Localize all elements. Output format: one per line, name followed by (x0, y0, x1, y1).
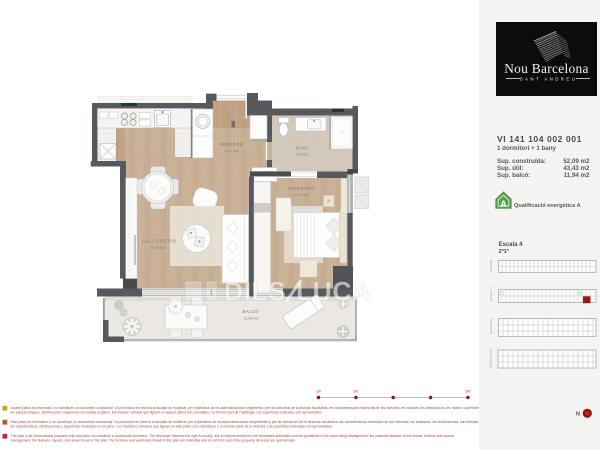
svg-text:las características, distribuc: las características, distribuciones y su… (11, 424, 333, 428)
svg-text:Aquest plànol és informatiu i: Aquest plànol és informatiu i no constit… (11, 406, 481, 410)
svg-text:10,41 m2: 10,41 m2 (294, 193, 309, 197)
svg-text:plantes 1-4: plantes 1-4 (489, 287, 493, 301)
svg-text:11,94 m2: 11,94 m2 (564, 172, 590, 179)
svg-text:4,17 m2: 4,17 m2 (225, 149, 238, 153)
svg-text:N: N (576, 412, 580, 418)
svg-text:Nou Barcelona: Nou Barcelona (504, 61, 589, 76)
svg-text:SALA D'ESTAR: SALA D'ESTAR (142, 239, 177, 244)
svg-text:Sup. útil:: Sup. útil: (497, 165, 523, 172)
svg-text:1 dormitori + 1 bany: 1 dormitori + 1 bany (497, 145, 557, 152)
svg-text:Escala 4: Escala 4 (499, 242, 524, 248)
svg-text:A: A (500, 199, 507, 209)
svg-text:5m: 5m (466, 390, 471, 394)
svg-text:2º1ª: 2º1ª (499, 248, 510, 255)
svg-text:LUCA: LUCA (296, 277, 372, 307)
svg-text:Sup. construïda:: Sup. construïda: (497, 158, 546, 165)
svg-text:1m: 1m (316, 390, 321, 394)
svg-text:VI 141 104 002 001: VI 141 104 002 001 (497, 134, 582, 144)
svg-text:planta àtic: planta àtic (489, 259, 493, 272)
svg-text:planta soterrani: planta soterrani (489, 348, 493, 368)
svg-text:BANY: BANY (296, 146, 309, 151)
svg-text:management, the features, layo: management, the features, layouts, and a… (11, 438, 296, 442)
svg-text:43,43 m2: 43,43 m2 (563, 165, 590, 172)
svg-text:DORMITORI: DORMITORI (288, 186, 315, 191)
svg-text:This plan is for informational: This plan is for informational purposes … (11, 434, 456, 438)
svg-text:BALCÓ: BALCÓ (243, 309, 259, 314)
svg-text:Qualificació energètica A: Qualificació energètica A (514, 203, 581, 209)
svg-text:SANT ANDREU: SANT ANDREU (520, 76, 578, 81)
svg-text:2m: 2m (353, 390, 358, 394)
svg-text:REBEDOR: REBEDOR (220, 142, 243, 147)
svg-text:planta baixa: planta baixa (489, 318, 493, 334)
svg-text:DILS: DILS (224, 277, 286, 307)
svg-text:20,67 m2: 20,67 m2 (150, 246, 165, 250)
svg-text:Este plano es informativo y no: Este plano es informativo y no constituy… (11, 420, 500, 424)
svg-text:Sup. balcó:: Sup. balcó: (497, 172, 530, 179)
svg-text:4,42 m2: 4,42 m2 (296, 153, 309, 157)
svg-text:les característiques, distribu: les característiques, distribucions i su… (11, 410, 323, 414)
svg-text:52,09 m2: 52,09 m2 (563, 158, 590, 165)
svg-text:11,94 m2: 11,94 m2 (244, 317, 259, 321)
